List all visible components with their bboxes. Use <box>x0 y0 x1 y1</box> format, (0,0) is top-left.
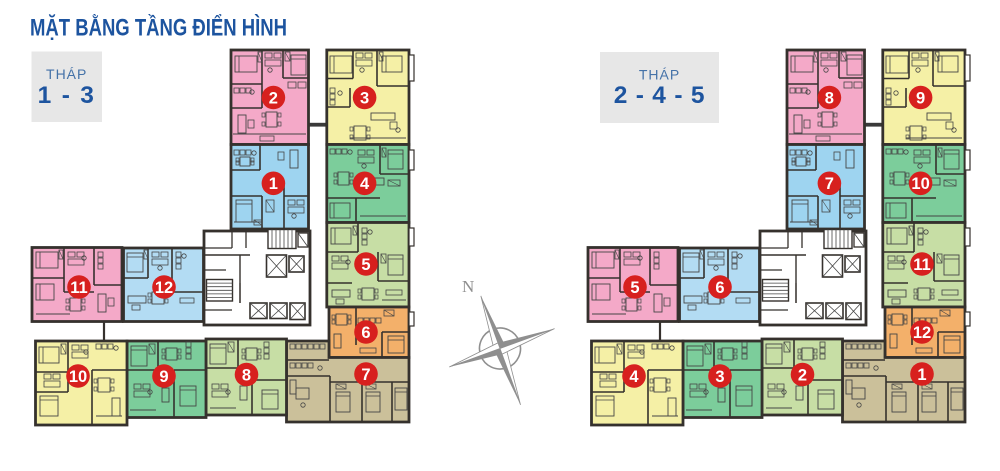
svg-text:10: 10 <box>911 175 929 193</box>
svg-text:MẶT BẰNG TẦNG ĐIỂN HÌNH: MẶT BẰNG TẦNG ĐIỂN HÌNH <box>30 14 287 42</box>
svg-text:11: 11 <box>70 279 87 297</box>
svg-text:5: 5 <box>630 279 639 297</box>
svg-text:6: 6 <box>715 279 724 297</box>
svg-text:4: 4 <box>629 368 639 386</box>
svg-text:3: 3 <box>715 368 724 386</box>
svg-text:7: 7 <box>361 366 370 384</box>
svg-text:12: 12 <box>913 324 931 342</box>
svg-text:N: N <box>462 277 474 296</box>
svg-text:4: 4 <box>360 175 370 193</box>
svg-text:6: 6 <box>361 324 370 342</box>
svg-text:1: 1 <box>269 175 278 193</box>
svg-text:THÁP: THÁP <box>46 66 87 82</box>
svg-text:11: 11 <box>913 256 930 274</box>
svg-text:THÁP: THÁP <box>639 67 680 83</box>
svg-text:9: 9 <box>159 368 168 386</box>
svg-text:1 - 3: 1 - 3 <box>38 82 96 109</box>
svg-text:10: 10 <box>69 368 87 386</box>
svg-text:2: 2 <box>269 89 278 107</box>
svg-text:12: 12 <box>155 279 173 297</box>
svg-text:9: 9 <box>916 89 925 107</box>
svg-text:5: 5 <box>361 256 370 274</box>
svg-text:8: 8 <box>825 89 834 107</box>
svg-text:1: 1 <box>917 366 926 384</box>
svg-text:7: 7 <box>825 175 834 193</box>
svg-text:3: 3 <box>360 89 369 107</box>
svg-text:2: 2 <box>798 366 807 384</box>
svg-text:8: 8 <box>242 366 251 384</box>
svg-text:2 - 4 - 5: 2 - 4 - 5 <box>614 82 706 109</box>
